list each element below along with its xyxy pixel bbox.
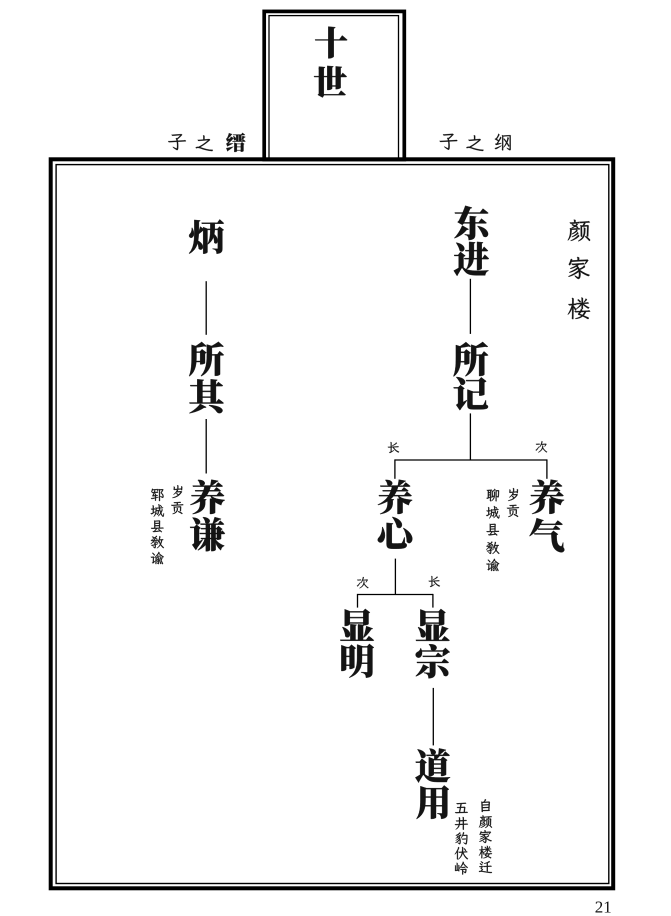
svg-text:21: 21	[595, 898, 612, 916]
